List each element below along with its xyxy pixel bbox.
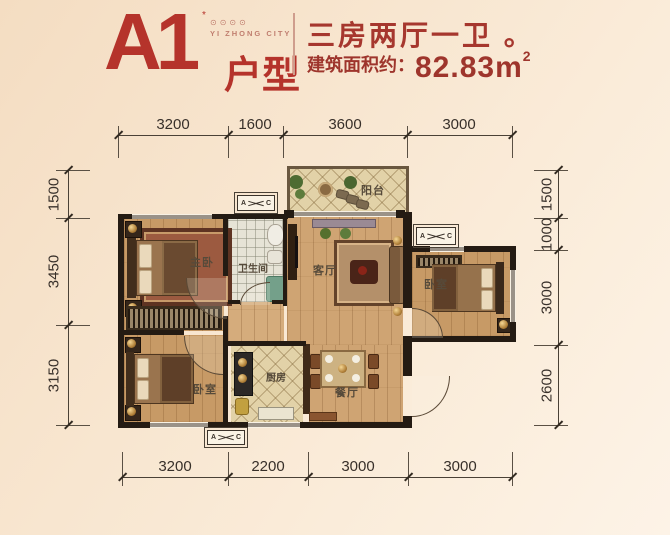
chair	[368, 354, 379, 369]
plate	[352, 374, 360, 382]
dim-line-right	[558, 170, 559, 425]
ac-unit-box: A C	[207, 430, 245, 445]
dim-label: 3000	[539, 268, 556, 328]
window	[430, 246, 464, 252]
plate	[325, 374, 333, 382]
bed-blanket	[160, 355, 193, 403]
ac-cross-icon	[427, 228, 445, 244]
lamp-icon	[499, 320, 508, 329]
bed-headboard	[126, 352, 134, 406]
wall	[403, 252, 412, 308]
room-label-balcony: 阳台	[361, 182, 385, 198]
unit-code: A1	[104, 0, 194, 84]
lamp-icon	[127, 339, 136, 348]
dim-ext	[122, 452, 123, 486]
dim-line-left	[68, 170, 69, 425]
dim-label: 3450	[46, 242, 63, 302]
dim-label: 3000	[328, 458, 388, 475]
burner-icon	[238, 358, 247, 367]
console-table	[312, 219, 376, 228]
lamp-icon	[393, 307, 402, 316]
ac-letter-a: A	[211, 434, 216, 441]
lamp-icon	[127, 407, 136, 416]
dim-label: 3200	[145, 458, 205, 475]
dim-label: 3000	[429, 116, 489, 133]
pendant-lamp-icon	[338, 364, 347, 373]
dim-line-top	[118, 135, 512, 136]
ac-unit-box: A C	[416, 227, 456, 245]
balcony-rail	[406, 166, 409, 212]
room-label-kitchen: 厨房	[266, 369, 286, 384]
ac-cross-icon	[218, 431, 234, 444]
area-value: 82.83m	[415, 51, 523, 84]
basket	[235, 398, 249, 415]
area-row: 建筑面积约：82.83m2	[307, 48, 531, 85]
dim-label: 1600	[225, 116, 285, 133]
area-label: 建筑面积约：	[307, 55, 415, 75]
room-label-master: 主卧	[190, 254, 214, 270]
room-hallway	[228, 302, 284, 344]
brand-logo-text: YI ZHONG CITY	[210, 29, 291, 38]
room-label-bathroom: 卫生间	[238, 260, 268, 275]
dim-ext	[56, 325, 90, 326]
dim-ext	[512, 126, 513, 158]
dim-label: 3200	[143, 116, 203, 133]
basket	[318, 182, 333, 197]
wall	[396, 210, 405, 218]
wall	[228, 341, 306, 346]
wall	[118, 214, 124, 428]
pillow	[137, 358, 149, 378]
dim-label: 3000	[430, 458, 490, 475]
sink	[267, 250, 283, 264]
dim-ext	[228, 452, 229, 486]
trademark-mark: *	[202, 10, 206, 21]
window	[132, 214, 212, 219]
dim-ext	[408, 452, 409, 486]
balcony-slider-window	[294, 211, 396, 217]
wall	[223, 316, 228, 422]
plant-icon	[295, 189, 305, 199]
window	[150, 422, 208, 428]
unit-suffix: 户型	[224, 44, 300, 99]
dim-line-bottom	[122, 477, 512, 478]
wall	[284, 210, 294, 218]
lamp-icon	[393, 236, 402, 245]
plant-icon	[340, 228, 351, 239]
pillow	[481, 268, 493, 288]
dim-ext	[407, 126, 408, 158]
floorplan-page: A1 * ⊙⊙⊙⊙ YI ZHONG CITY 户型 三房两厅一卫 。 建筑面积…	[0, 0, 670, 535]
ac-letter-c: C	[236, 434, 241, 441]
dim-label: 3150	[46, 346, 63, 406]
dim-label: 1500	[46, 165, 63, 225]
dim-ext	[534, 425, 568, 426]
dim-ext	[56, 425, 90, 426]
dim-label: 2200	[238, 458, 298, 475]
window	[248, 422, 300, 428]
plant-icon	[320, 228, 331, 239]
dim-ext	[308, 452, 309, 486]
plate	[325, 355, 333, 363]
dim-ext	[534, 345, 568, 346]
pillow	[137, 380, 149, 400]
bench	[309, 412, 337, 421]
ac-letter-a: A	[241, 200, 246, 207]
lamp-icon	[128, 224, 137, 233]
plate	[352, 355, 360, 363]
toilet	[267, 224, 284, 246]
wall	[228, 300, 240, 304]
room-label-bedroom-right: 卧室	[424, 276, 448, 292]
door-arc-entry	[412, 376, 450, 417]
dim-ext	[118, 126, 119, 158]
room-label-living: 客厅	[313, 262, 337, 278]
room-label-dining: 餐厅	[335, 384, 359, 400]
pillow	[139, 270, 152, 294]
window	[510, 270, 516, 322]
balcony-rail	[287, 166, 290, 214]
cabinet	[303, 344, 310, 414]
room-label-bedroom-second: 卧室	[193, 381, 217, 397]
pillow	[139, 244, 152, 268]
dim-ext	[512, 452, 513, 486]
wall	[403, 336, 412, 376]
tv	[295, 236, 298, 268]
plant-icon	[344, 176, 357, 189]
bed-headboard	[496, 262, 504, 314]
bed-headboard	[127, 238, 136, 298]
ac-unit-box: A C	[237, 195, 275, 211]
plant-icon	[289, 175, 303, 189]
area-superscript: 2	[523, 48, 531, 64]
ac-letter-c: C	[266, 200, 271, 207]
kitchen-sink	[258, 407, 294, 420]
chair	[368, 374, 379, 389]
ac-letter-c: C	[447, 233, 452, 240]
pillow	[481, 290, 493, 310]
brand-logo-marks: ⊙⊙⊙⊙	[210, 18, 249, 27]
ac-letter-a: A	[420, 233, 425, 240]
dim-label: 3600	[315, 116, 375, 133]
dim-label: 1000	[539, 205, 556, 265]
balcony-rail	[287, 166, 409, 169]
table-decor	[358, 266, 367, 275]
ac-cross-icon	[248, 196, 264, 210]
burner-icon	[238, 374, 247, 383]
dim-label: 2600	[539, 356, 556, 416]
wall	[124, 330, 184, 335]
wall	[272, 300, 284, 304]
wall	[283, 214, 287, 306]
header-divider	[293, 13, 295, 75]
wall	[223, 214, 228, 276]
